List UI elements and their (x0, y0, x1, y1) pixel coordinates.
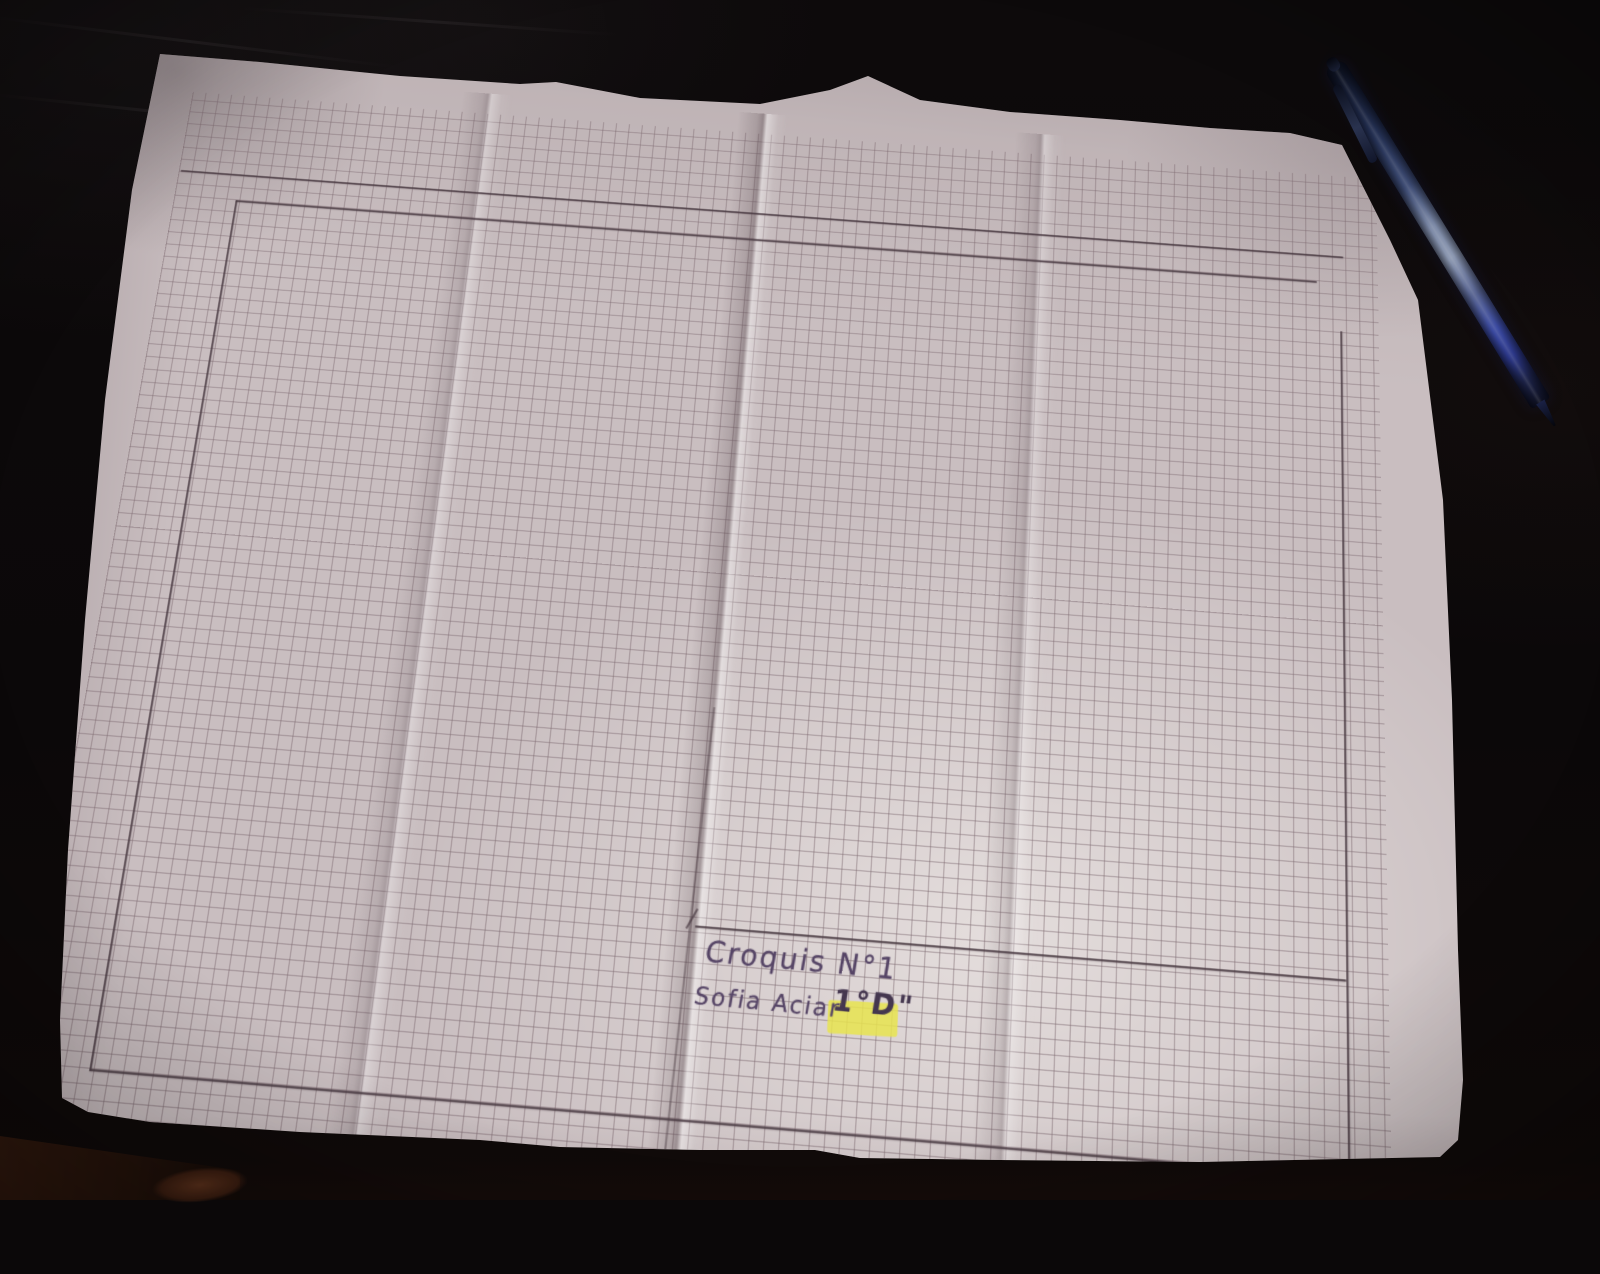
graph-grid: Croquis N°1 Sofia Aciar 1°D" (9, 92, 1393, 1246)
handwritten-title: Croquis N°1 (702, 935, 900, 986)
pencil-margin-line-right (1340, 331, 1350, 1179)
fold-crease-left (318, 92, 513, 1186)
wood-grain-streak (240, 7, 619, 37)
fold-crease-center (642, 112, 789, 1214)
desk-edge-shadow (240, 1160, 1600, 1200)
fold-crease-right (968, 132, 1066, 1242)
